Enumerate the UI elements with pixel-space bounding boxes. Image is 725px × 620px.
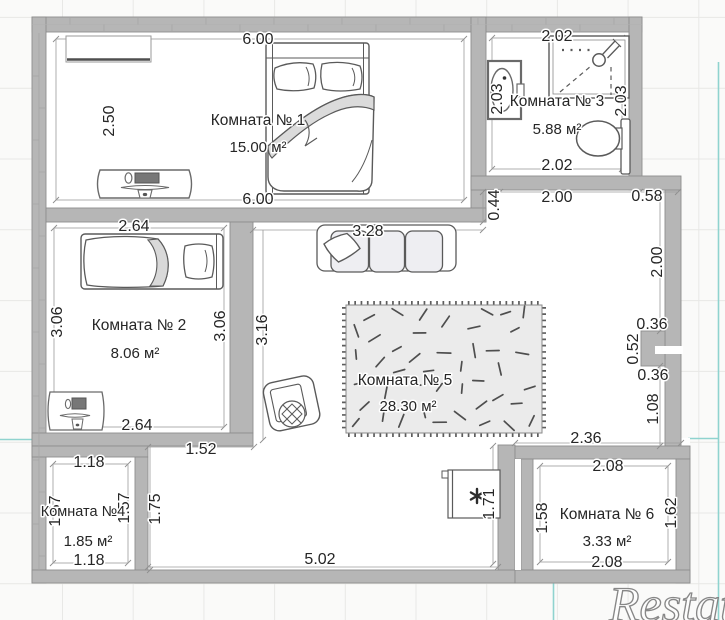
svg-text:3.33 м²: 3.33 м² xyxy=(583,533,632,550)
svg-text:15.00 м²: 15.00 м² xyxy=(229,139,286,156)
svg-text:1.18: 1.18 xyxy=(73,552,104,569)
svg-text:1.62: 1.62 xyxy=(663,497,680,528)
svg-text:Комната № 5: Комната № 5 xyxy=(358,372,453,389)
svg-text:1.18: 1.18 xyxy=(73,454,104,471)
svg-text:6.00: 6.00 xyxy=(242,191,273,208)
svg-text:2.02: 2.02 xyxy=(541,157,572,174)
svg-text:2.36: 2.36 xyxy=(570,430,601,447)
svg-text:2.08: 2.08 xyxy=(591,554,622,571)
svg-text:0.36: 0.36 xyxy=(637,367,668,384)
svg-text:2.08: 2.08 xyxy=(592,458,623,475)
svg-text:Restate: Restate xyxy=(608,576,725,620)
svg-text:2.03: 2.03 xyxy=(613,85,630,116)
svg-text:1.71: 1.71 xyxy=(481,488,498,519)
svg-text:2.64: 2.64 xyxy=(118,218,149,235)
svg-text:1.85 м²: 1.85 м² xyxy=(64,533,113,550)
svg-text:2.02: 2.02 xyxy=(541,28,572,45)
svg-text:Комната № 6: Комната № 6 xyxy=(560,506,655,523)
svg-text:3.06: 3.06 xyxy=(49,306,66,337)
svg-text:2.03: 2.03 xyxy=(489,83,506,114)
svg-text:1.58: 1.58 xyxy=(534,502,551,533)
svg-text:5.02: 5.02 xyxy=(304,551,335,568)
svg-text:0.44: 0.44 xyxy=(486,189,503,220)
svg-text:0.58: 0.58 xyxy=(631,188,662,205)
svg-text:3.16: 3.16 xyxy=(254,314,271,345)
svg-text:Комната № 2: Комната № 2 xyxy=(92,317,187,334)
svg-text:6.00: 6.00 xyxy=(242,31,273,48)
svg-text:2.00: 2.00 xyxy=(541,189,572,206)
svg-text:8.06 м²: 8.06 м² xyxy=(111,345,160,362)
svg-text:5.88 м²: 5.88 м² xyxy=(533,121,582,138)
svg-text:1.52: 1.52 xyxy=(185,441,216,458)
svg-text:Комната №4: Комната №4 xyxy=(41,504,125,520)
svg-text:0.52: 0.52 xyxy=(625,333,642,364)
svg-text:3.28: 3.28 xyxy=(352,223,383,240)
svg-text:2.50: 2.50 xyxy=(101,105,118,136)
svg-text:Комната № 3: Комната № 3 xyxy=(510,93,605,110)
svg-text:0.36: 0.36 xyxy=(636,316,667,333)
svg-text:2.00: 2.00 xyxy=(649,246,666,277)
svg-text:Комната № 1: Комната № 1 xyxy=(211,112,306,129)
svg-text:28.30 м²: 28.30 м² xyxy=(379,398,436,415)
svg-text:3.06: 3.06 xyxy=(212,310,229,341)
svg-text:1.75: 1.75 xyxy=(147,493,164,524)
svg-text:1.08: 1.08 xyxy=(645,393,662,424)
svg-text:2.64: 2.64 xyxy=(121,417,152,434)
